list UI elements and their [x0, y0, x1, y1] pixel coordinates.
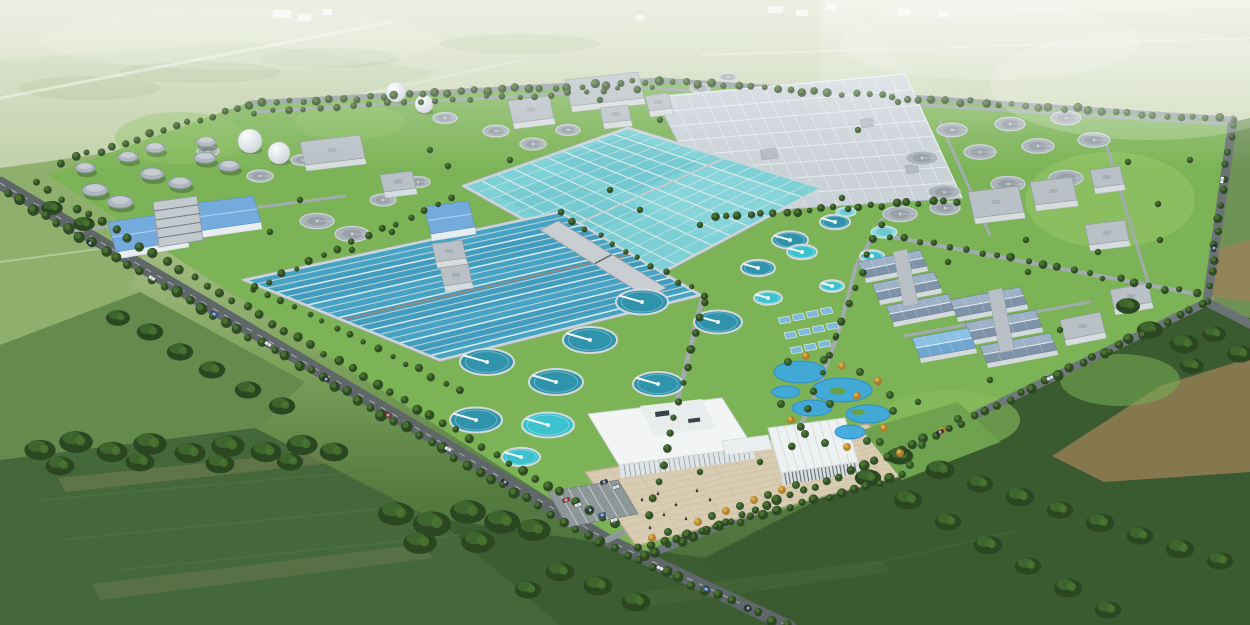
screenshot-root	[0, 0, 1250, 625]
plant-aerial-rendering	[0, 0, 1250, 625]
tall-office-building	[153, 196, 203, 247]
car	[1212, 244, 1217, 252]
car	[1220, 176, 1225, 184]
haze-overlay	[0, 0, 1250, 170]
